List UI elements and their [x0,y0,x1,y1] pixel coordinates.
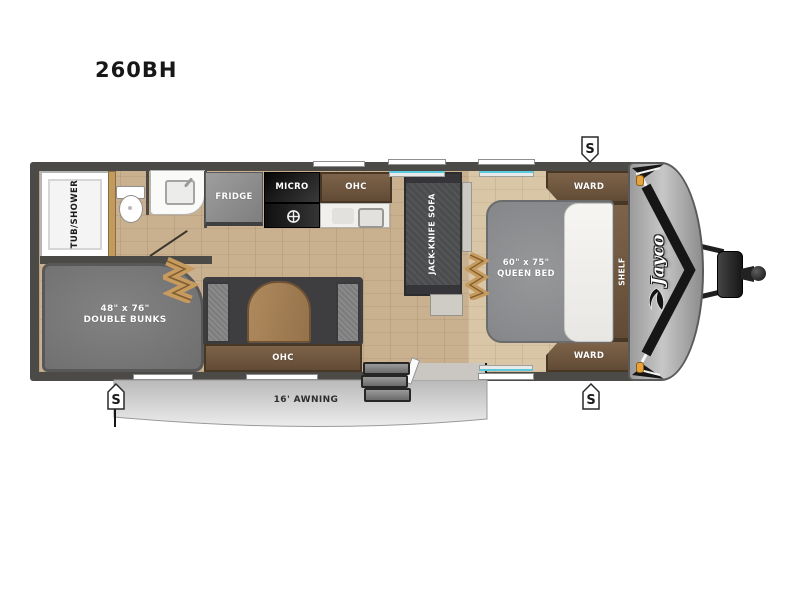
dinette-table [247,281,311,343]
burner-icon [286,209,301,224]
entry-step-1 [363,362,410,375]
bath-sink-icon [165,180,195,205]
dinette-bench-right [336,282,360,343]
accordion-door-icon [163,257,205,303]
tub-shower-label: TUB/SHOWER [70,180,80,248]
jack-knife-sofa: JACK-KNIFE SOFA [404,172,462,296]
kitchen-ohc-label: OHC [345,182,366,193]
sink-basin-right-icon [358,208,384,228]
ward-bottom-label: WARD [574,351,604,362]
sofa-label: JACK-KNIFE SOFA [428,193,438,274]
ward-top-label: WARD [574,182,604,193]
dinette-bench-left [206,282,230,343]
window-sofa-sill [389,171,445,177]
sofa-end-table [430,294,463,316]
window-kitchen [313,161,365,167]
bed-size-label: 60" x 75" [476,258,576,269]
sink-basin-left-icon [332,208,354,224]
wardrobe-bottom: WARD [546,340,632,372]
shelf-label: SHELF [617,257,626,285]
brand-logo-text: Jayco [648,235,668,286]
svg-text:S: S [586,393,595,408]
svg-text:S: S [111,393,120,408]
awning-label: 16' AWNING [236,395,376,406]
marker-light-icon-top [636,175,644,186]
hitch-jack-wheel-icon [751,266,766,281]
kitchen-overhead-cabinet: OHC [320,172,392,203]
front-cap: Jayco [628,162,704,381]
window-bed-top-sill [479,171,534,177]
entry-step-3 [364,388,411,402]
bedroom-divider-wall [462,182,472,252]
bath-vanity [150,170,205,215]
dinette-overhead-cabinet: OHC [204,344,362,372]
svg-text:S: S [585,142,594,157]
bath-wall-divider [146,170,149,215]
tub-shower: TUB/SHOWER [40,171,110,258]
floorplan-page: 260BH TUB/SHOWER 48" x 76" DOUBLE BUN [0,0,800,600]
fridge-label: FRIDGE [215,192,252,203]
dinette-ohc-label: OHC [272,353,293,364]
stabilizer-jack-icon-bottom-right: S [582,383,600,410]
jayco-bird-icon [648,287,668,313]
kitchen-sink-counter [320,203,390,228]
awning-shape [113,379,489,433]
bunks-name-label: DOUBLE BUNKS [55,315,195,326]
marker-light-icon-bottom [636,362,644,373]
wardrobe-top: WARD [546,171,632,203]
entry-landing [412,363,487,380]
microwave: MICRO [264,172,320,203]
brand-logo: Jayco [632,224,684,324]
window-sofa [388,159,446,165]
window-bed-bottom-sill [479,365,533,371]
window-bunk [133,374,193,380]
fridge: FRIDGE [205,172,263,226]
propane-cover [717,251,743,298]
entry-step-2 [361,375,408,388]
stabilizer-jack-icon-bottom-left: S [107,383,125,410]
bunks-size-label: 48" x 76" [55,304,195,315]
bed-name-label: QUEEN BED [476,269,576,280]
stabilizer-jack-icon-top: S [581,136,599,163]
page-title: 260BH [95,58,177,82]
microwave-label: MICRO [275,182,308,193]
window-dinette [246,374,318,380]
window-bed-bottom [478,373,534,380]
bath-door-track [108,171,116,258]
window-bed-top [478,159,535,165]
stove [264,203,320,228]
